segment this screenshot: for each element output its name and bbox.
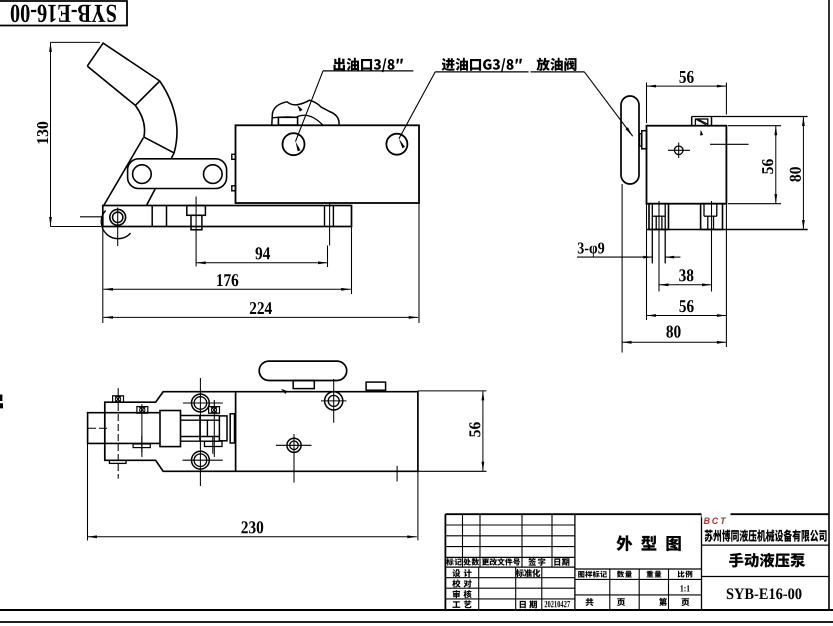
svg-text:BCT: BCT: [704, 516, 728, 526]
